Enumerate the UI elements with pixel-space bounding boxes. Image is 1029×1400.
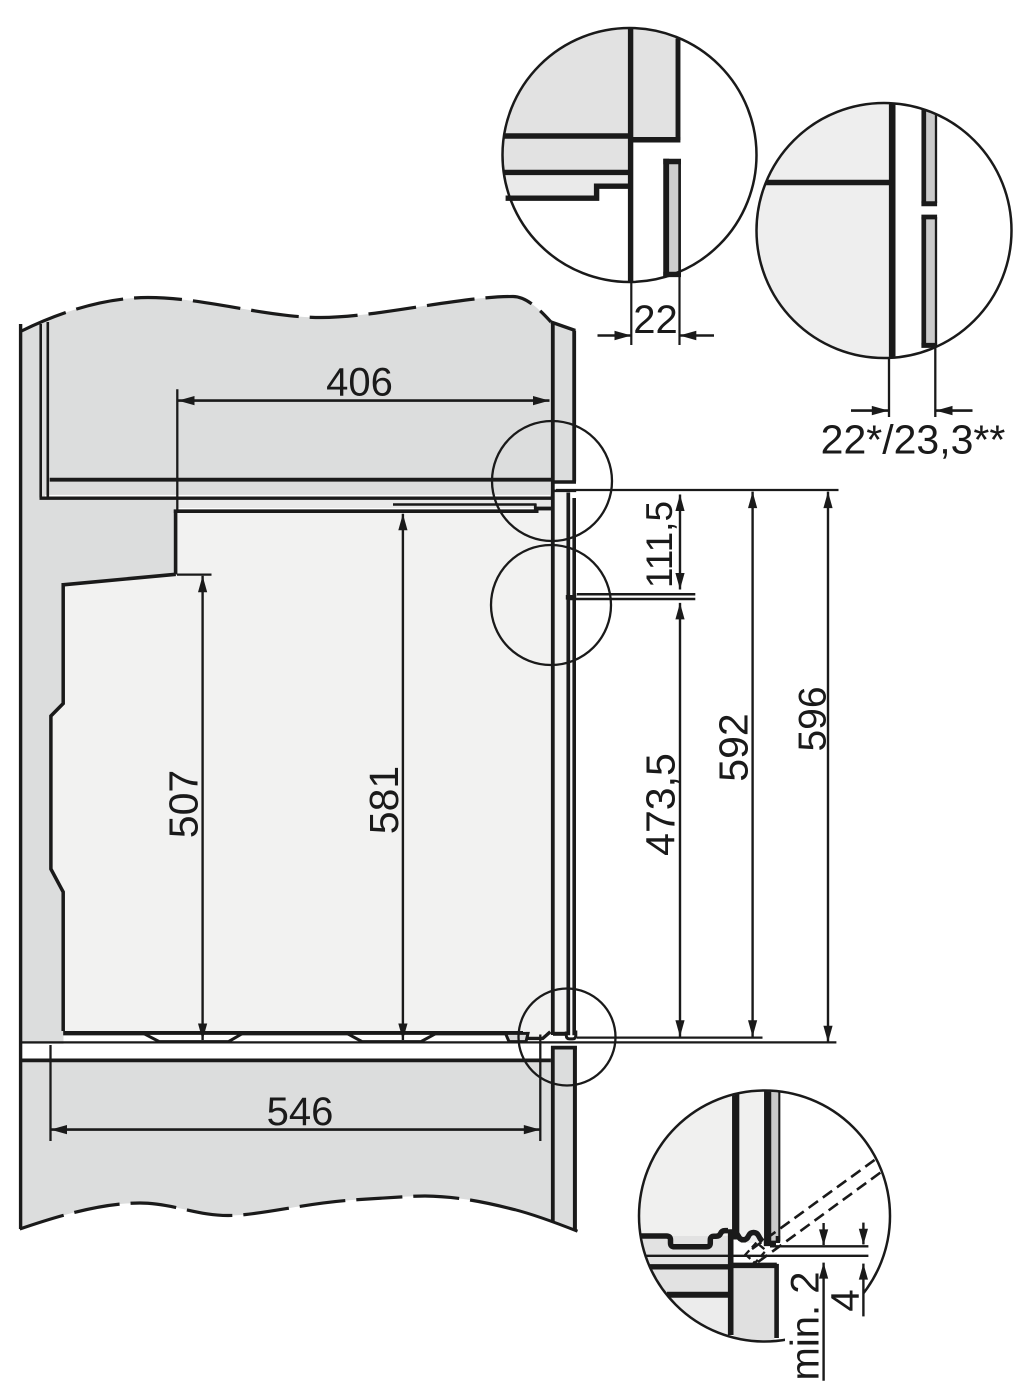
svg-text:min. 2: min. 2 [784,1272,828,1381]
svg-text:546: 546 [267,1090,334,1134]
svg-text:4: 4 [824,1289,868,1311]
svg-text:596: 596 [792,686,835,751]
svg-text:473,5: 473,5 [638,753,684,856]
svg-text:592: 592 [711,713,757,781]
svg-text:22*/23,3**: 22*/23,3** [821,417,1006,463]
svg-text:581: 581 [361,766,407,834]
svg-text:406: 406 [326,361,393,405]
svg-text:22: 22 [633,298,678,342]
svg-text:507: 507 [161,770,207,838]
svg-text:111,5: 111,5 [639,501,680,588]
